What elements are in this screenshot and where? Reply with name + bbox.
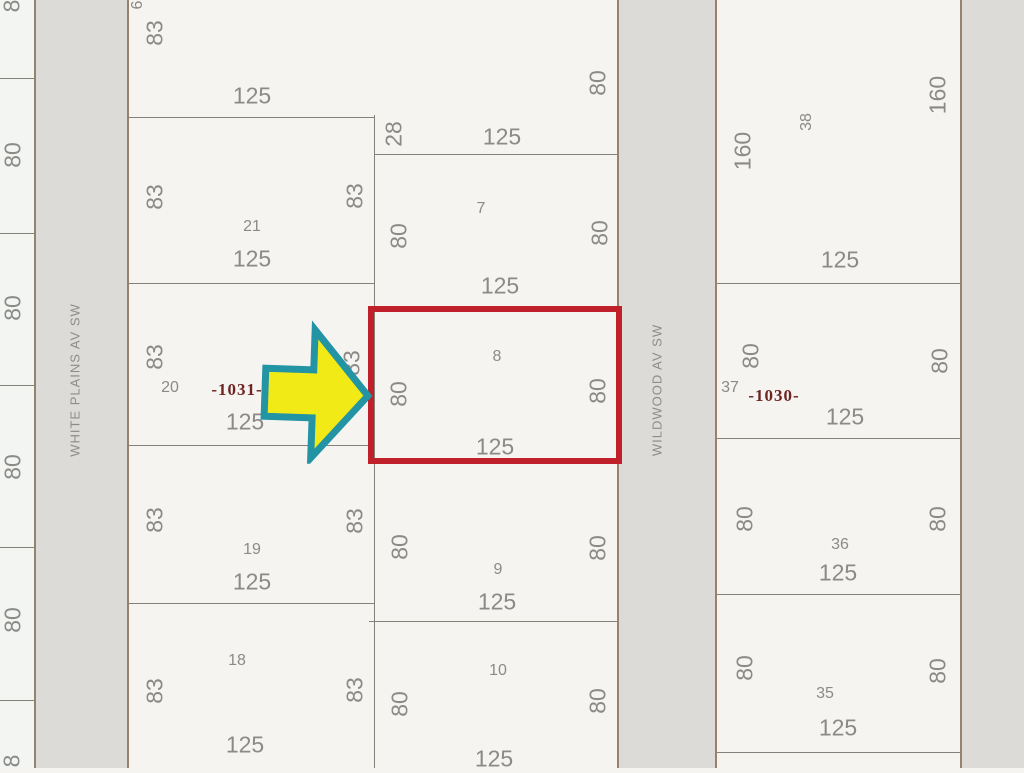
dimension-label: 125	[826, 404, 864, 431]
dimension-label: 80	[738, 343, 765, 369]
dimension-label: 83	[142, 20, 169, 46]
parcel-boundary-line	[717, 438, 960, 439]
dimension-label: 80	[732, 655, 759, 681]
dimension-label: 125	[483, 124, 521, 151]
dimension-label: 80	[585, 688, 612, 714]
dimension-label: 80	[585, 535, 612, 561]
west-lots-strip	[0, 0, 34, 768]
lot-number-label: 7	[477, 200, 486, 218]
parcel-boundary-line	[0, 78, 34, 79]
pointer-arrow	[256, 318, 377, 466]
dimension-label: 160	[925, 76, 952, 114]
lot-number-label: 9	[494, 561, 503, 579]
lot-number-label: 38	[798, 113, 816, 131]
dimension-label: 83	[142, 344, 169, 370]
dimension-label: 125	[475, 746, 513, 773]
dimension-label: 80	[386, 223, 413, 249]
parcel-boundary-line	[369, 621, 617, 622]
dimension-label: 80	[387, 534, 414, 560]
dimension-label: 80	[387, 691, 414, 717]
lot-number-label: 18	[228, 652, 246, 670]
dimension-label: 80	[925, 658, 952, 684]
block-number-label: -1031-	[211, 380, 262, 400]
dimension-label: 80	[925, 506, 952, 532]
parcel-boundary-line	[717, 283, 960, 284]
dimension-label: 125	[819, 560, 857, 587]
arrow-right-icon	[256, 318, 377, 466]
lot-number-label: 35	[816, 685, 834, 703]
dimension-label: 80	[0, 142, 27, 168]
dimension-label: 80	[0, 607, 27, 633]
east-margin	[962, 0, 1024, 768]
street-boundary-line	[715, 0, 717, 768]
parcel-boundary-line	[129, 283, 375, 284]
parcel-boundary-line	[717, 752, 960, 753]
lot-number-label: 19	[243, 541, 261, 559]
lot-number-label: 36	[831, 536, 849, 554]
dimension-label: 8	[0, 755, 26, 768]
lot-number-label: 20	[161, 379, 179, 397]
parcel-boundary-line	[0, 385, 34, 386]
parcel-boundary-line	[717, 594, 960, 595]
parcel-boundary-line	[129, 603, 375, 604]
parcel-boundary-line	[0, 233, 34, 234]
dimension-label: 125	[478, 589, 516, 616]
parcel-boundary-line	[0, 547, 34, 548]
dimension-label: 83	[342, 183, 369, 209]
lot-number-label: 21	[243, 218, 261, 236]
dimension-label: 125	[226, 732, 264, 759]
dimension-label: 83	[142, 184, 169, 210]
parcel-boundary-line	[129, 117, 375, 118]
street-boundary-line	[960, 0, 962, 768]
parcel-boundary-line	[374, 154, 617, 155]
dimension-label: 80	[0, 454, 27, 480]
highlight-rectangle	[368, 306, 622, 464]
lot-number-label: 10	[489, 662, 507, 680]
dimension-label: 125	[233, 83, 271, 110]
dimension-label: 125	[821, 247, 859, 274]
dimension-label: 160	[730, 132, 757, 170]
dimension-label: 83	[342, 677, 369, 703]
dimension-label: 125	[481, 273, 519, 300]
parcel-boundary-line	[0, 700, 34, 701]
lot-number-label: 6	[129, 1, 147, 10]
dimension-label: 125	[233, 569, 271, 596]
dimension-label: 83	[142, 678, 169, 704]
street-name-white-plains: WHITE PLAINS AV SW	[68, 303, 83, 457]
dimension-label: 8	[0, 0, 26, 12]
street-band-wildwood	[619, 0, 715, 768]
dimension-label: 80	[585, 70, 612, 96]
dimension-label: 28	[381, 121, 408, 147]
dimension-label: 125	[233, 246, 271, 273]
lot-number-label: 37	[721, 379, 739, 397]
block-number-label: -1030-	[748, 386, 799, 406]
dimension-label: 125	[819, 715, 857, 742]
dimension-label: 83	[142, 507, 169, 533]
dimension-label: 80	[732, 506, 759, 532]
parcel-map-canvas: { "streets": { "west": "WHITE PLAINS AV …	[0, 0, 1024, 768]
dimension-label: 80	[587, 220, 614, 246]
dimension-label: 80	[927, 348, 954, 374]
street-name-wildwood: WILDWOOD AV SW	[650, 324, 665, 456]
street-boundary-line	[127, 0, 129, 768]
street-boundary-line	[34, 0, 36, 768]
dimension-label: 83	[342, 508, 369, 534]
dimension-label: 80	[0, 295, 27, 321]
